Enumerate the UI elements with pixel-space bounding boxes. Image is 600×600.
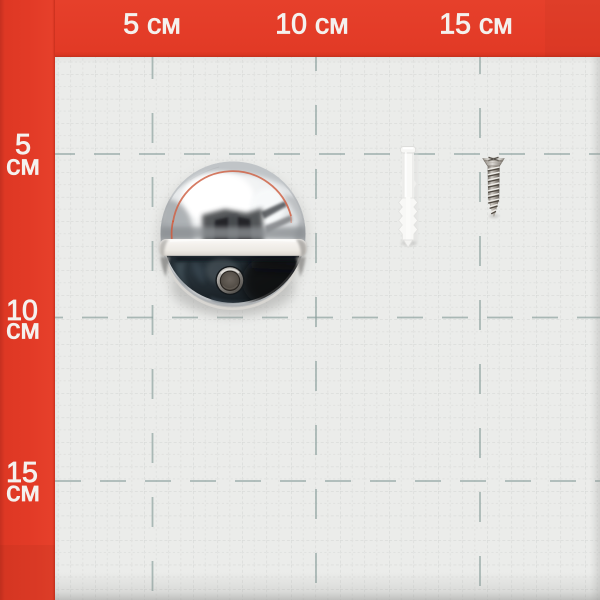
svg-text:см: см [6,314,40,346]
svg-text:см: см [6,150,40,182]
svg-text:см: см [6,476,40,508]
svg-text:5 см: 5 см [123,9,181,41]
svg-text:15 см: 15 см [439,9,512,41]
svg-text:10 см: 10 см [275,9,348,41]
